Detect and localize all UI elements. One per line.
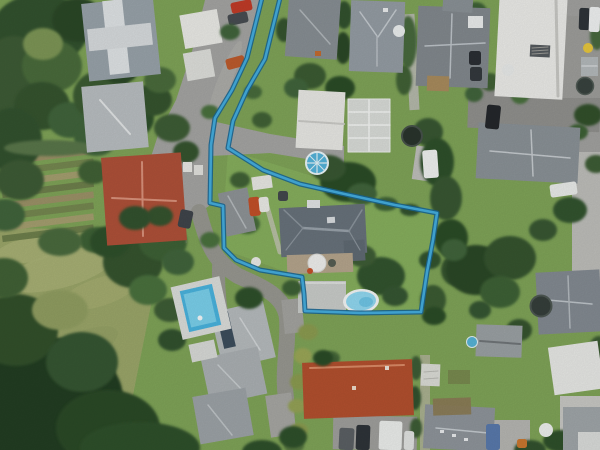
- photo-grain-overlay: [0, 0, 600, 450]
- map-viewport[interactable]: [0, 0, 600, 450]
- aerial-imagery: [0, 0, 600, 450]
